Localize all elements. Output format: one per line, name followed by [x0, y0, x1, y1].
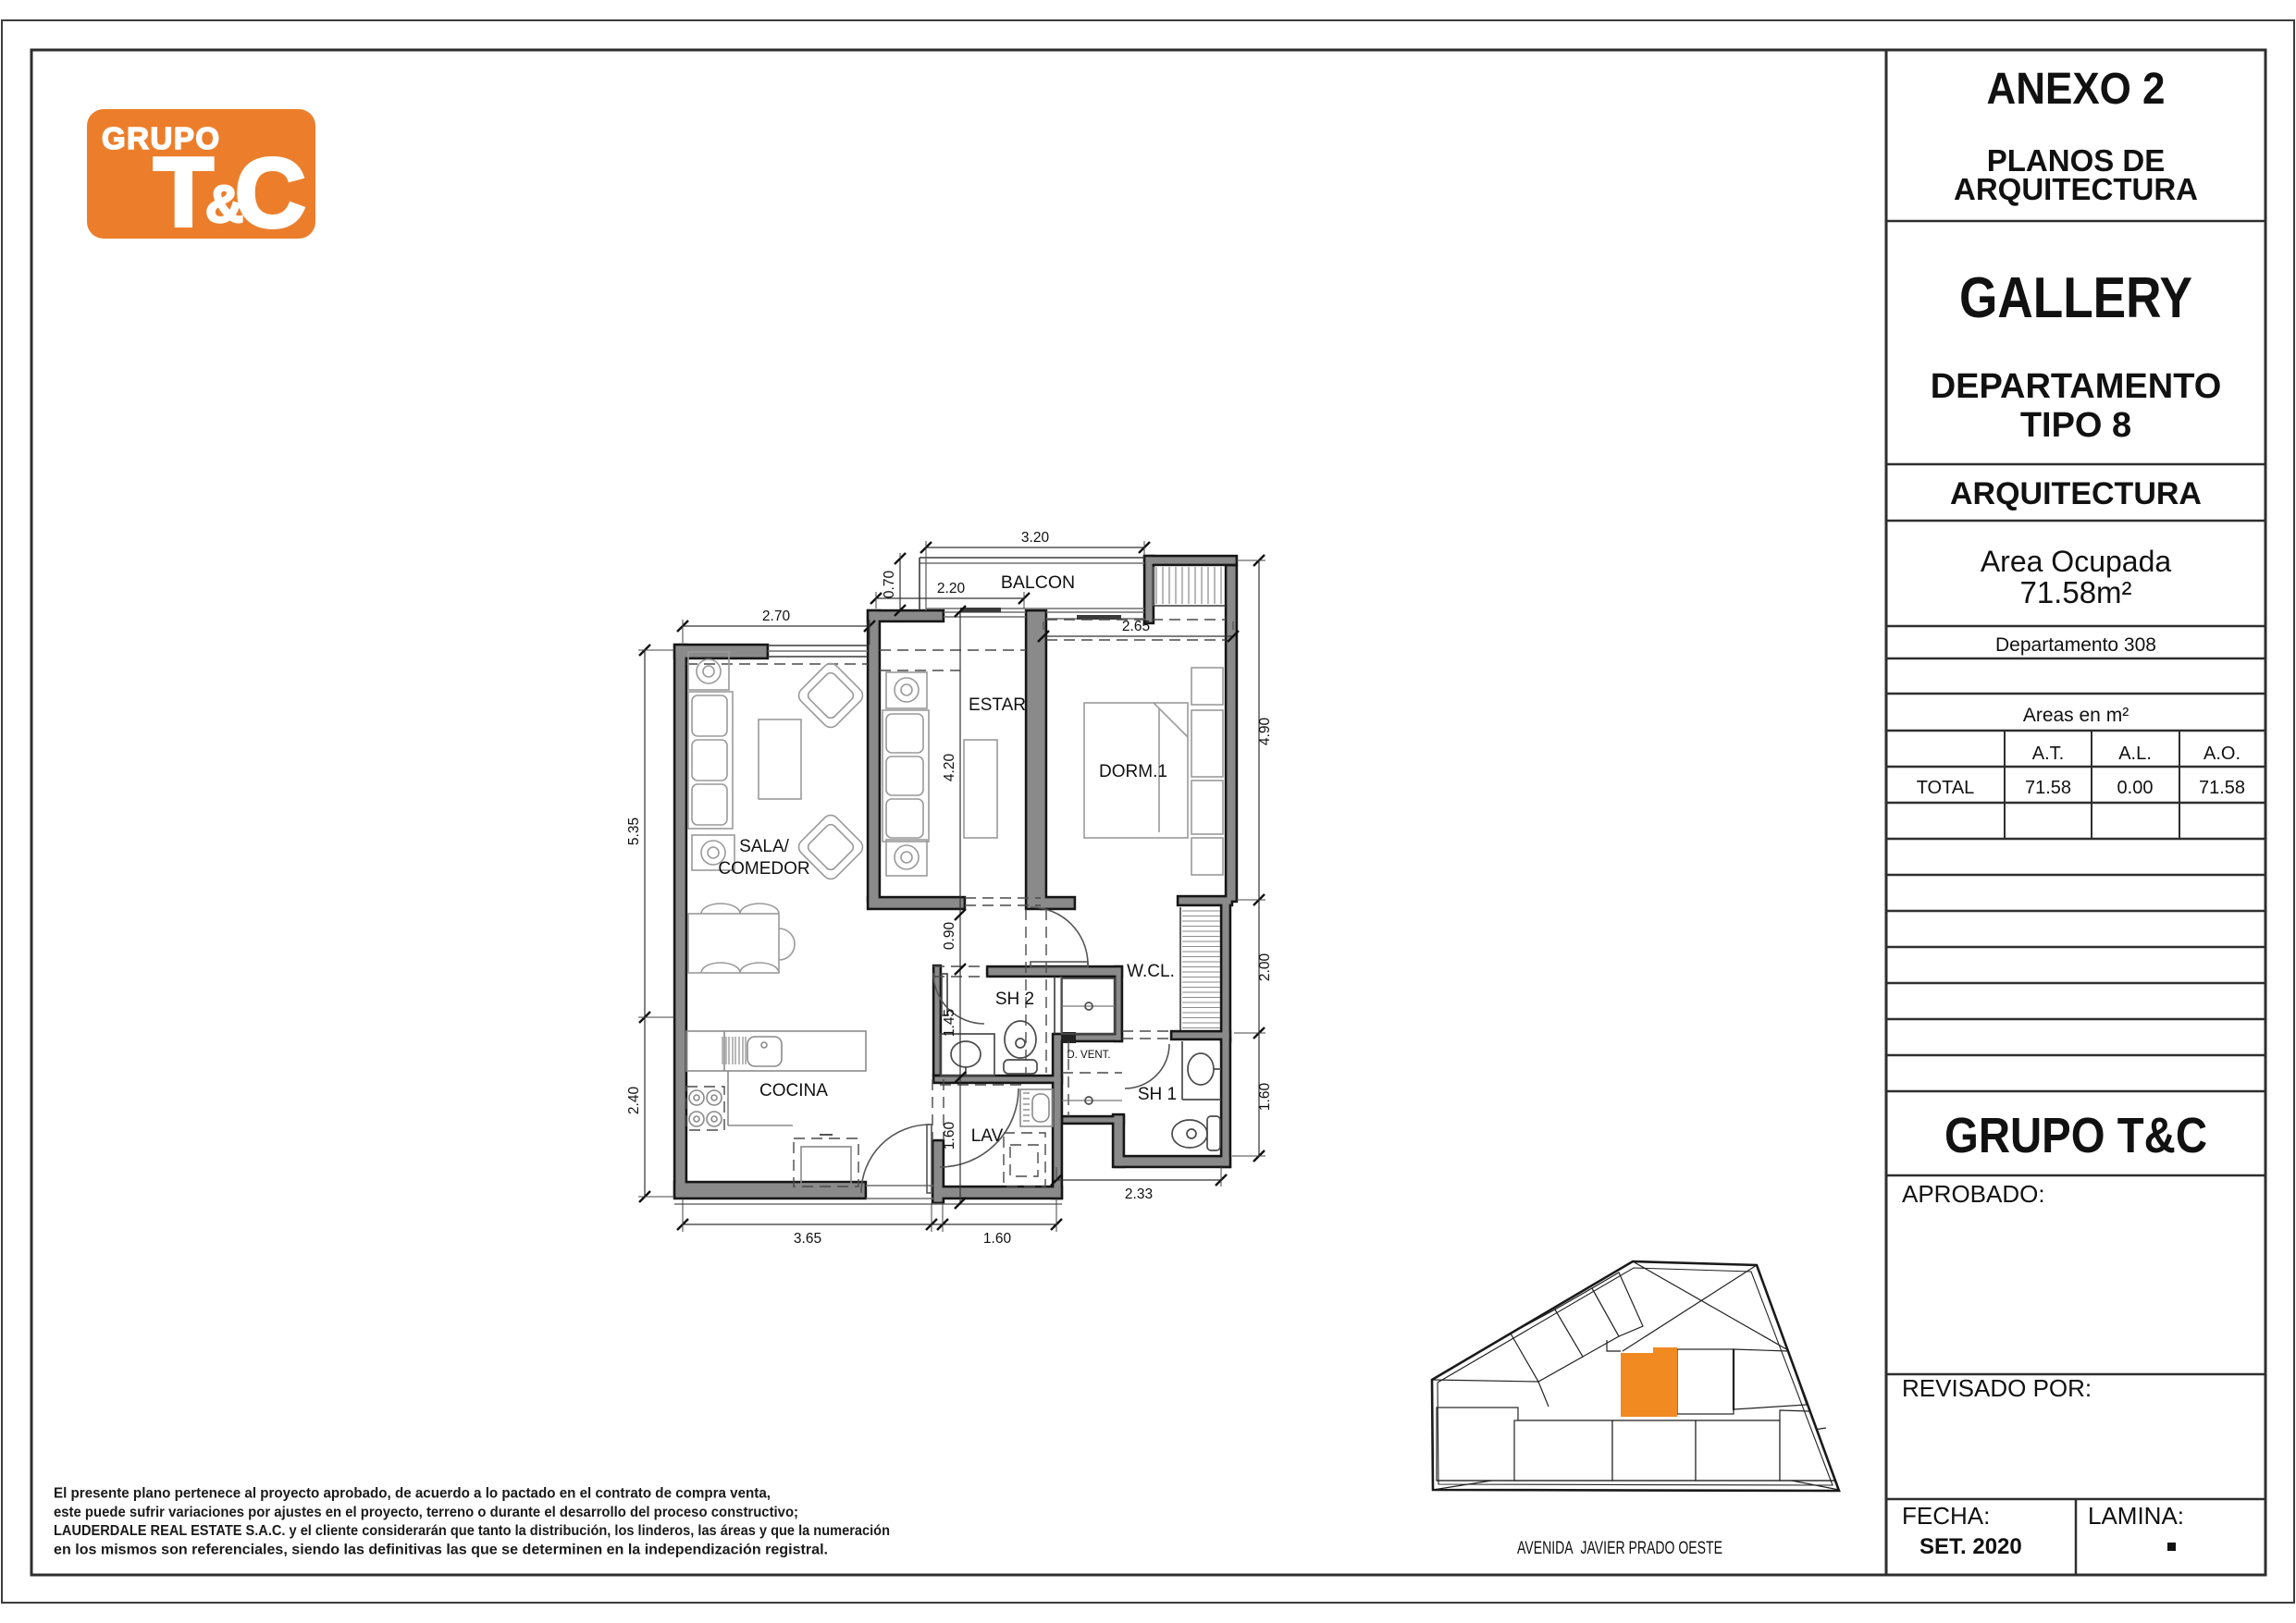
svg-text:ANEXO 2: ANEXO 2 [1987, 65, 2166, 114]
svg-text:2.00: 2.00 [1257, 953, 1273, 982]
svg-text:71.58m²: 71.58m² [2019, 575, 2131, 609]
svg-text:1.45: 1.45 [942, 1009, 957, 1037]
svg-text:2.40: 2.40 [626, 1087, 642, 1115]
svg-text:1.60: 1.60 [1257, 1083, 1273, 1112]
svg-text:DEPARTAMENTO: DEPARTAMENTO [1931, 367, 2222, 406]
svg-text:4.20: 4.20 [942, 754, 957, 782]
svg-text:3.20: 3.20 [1021, 530, 1050, 546]
svg-text:SH 1: SH 1 [1138, 1085, 1177, 1104]
svg-text:0.70: 0.70 [882, 571, 897, 599]
svg-text:GRUPO T&C: GRUPO T&C [1944, 1108, 2207, 1163]
svg-text:SH 2: SH 2 [995, 990, 1034, 1009]
svg-text:3.65: 3.65 [794, 1231, 821, 1247]
svg-text:A.O.: A.O. [2203, 744, 2240, 764]
svg-text:71.58: 71.58 [2199, 778, 2245, 798]
svg-text:LAV: LAV [971, 1126, 1004, 1146]
svg-text:2.70: 2.70 [762, 609, 791, 624]
svg-text:4.90: 4.90 [1257, 718, 1273, 746]
svg-text:DORM.1: DORM.1 [1099, 762, 1167, 781]
svg-text:2.20: 2.20 [937, 581, 966, 596]
svg-text:COCINA: COCINA [759, 1081, 828, 1100]
svg-text:0.90: 0.90 [942, 922, 957, 951]
svg-text:TOTAL: TOTAL [1917, 778, 1975, 798]
svg-text:ESTAR: ESTAR [969, 695, 1026, 715]
svg-text:COMEDOR: COMEDOR [718, 859, 809, 879]
svg-text:SALA/: SALA/ [739, 837, 790, 856]
svg-text:BALCON: BALCON [1001, 572, 1075, 593]
svg-text:GALLERY: GALLERY [1959, 266, 2192, 330]
svg-text:2.65: 2.65 [1122, 619, 1150, 634]
svg-text:0.00: 0.00 [2117, 778, 2154, 798]
svg-text:El presente plano pertenece al: El presente plano pertenece al proyecto … [54, 1486, 771, 1502]
svg-text:FECHA:: FECHA: [1902, 1502, 1990, 1530]
svg-text:este puede sufrir variaciones: este puede sufrir variaciones por ajuste… [54, 1505, 798, 1520]
svg-text:W.CL.: W.CL. [1127, 962, 1175, 981]
svg-text:SET. 2020: SET. 2020 [1920, 1534, 2022, 1559]
svg-text:APROBADO:: APROBADO: [1902, 1180, 2045, 1208]
svg-text:ARQUITECTURA: ARQUITECTURA [1954, 172, 2198, 206]
svg-text:AVENIDA JAVIER PRADO OESTE: AVENIDA JAVIER PRADO OESTE [1517, 1538, 1722, 1558]
svg-text:Area Ocupada: Area Ocupada [1981, 545, 2172, 578]
svg-text:1.60: 1.60 [942, 1122, 957, 1150]
svg-text:5.35: 5.35 [626, 818, 642, 845]
svg-text:ARQUITECTURA: ARQUITECTURA [1950, 476, 2202, 511]
svg-text:D. VENT.: D. VENT. [1067, 1050, 1110, 1061]
svg-text:2.33: 2.33 [1125, 1187, 1153, 1202]
svg-text:A.T.: A.T. [2032, 744, 2064, 764]
svg-text:A.L.: A.L. [2118, 744, 2152, 764]
svg-text:en los mismos son referenciale: en los mismos son referenciales, siendo … [54, 1542, 828, 1557]
svg-text:C: C [235, 139, 306, 248]
svg-text:71.58: 71.58 [2025, 778, 2071, 798]
svg-text:LAMINA:: LAMINA: [2088, 1502, 2184, 1530]
svg-text:Areas en m²: Areas en m² [2023, 705, 2129, 726]
svg-text:LAUDERDALE REAL ESTATE S.A.C.: LAUDERDALE REAL ESTATE S.A.C. y el clien… [54, 1523, 890, 1539]
svg-text:1.60: 1.60 [983, 1231, 1012, 1247]
svg-text:Departamento 308: Departamento 308 [1995, 634, 2156, 656]
svg-text:REVISADO POR:: REVISADO POR: [1902, 1374, 2092, 1402]
svg-text:TIPO 8: TIPO 8 [2020, 406, 2131, 445]
